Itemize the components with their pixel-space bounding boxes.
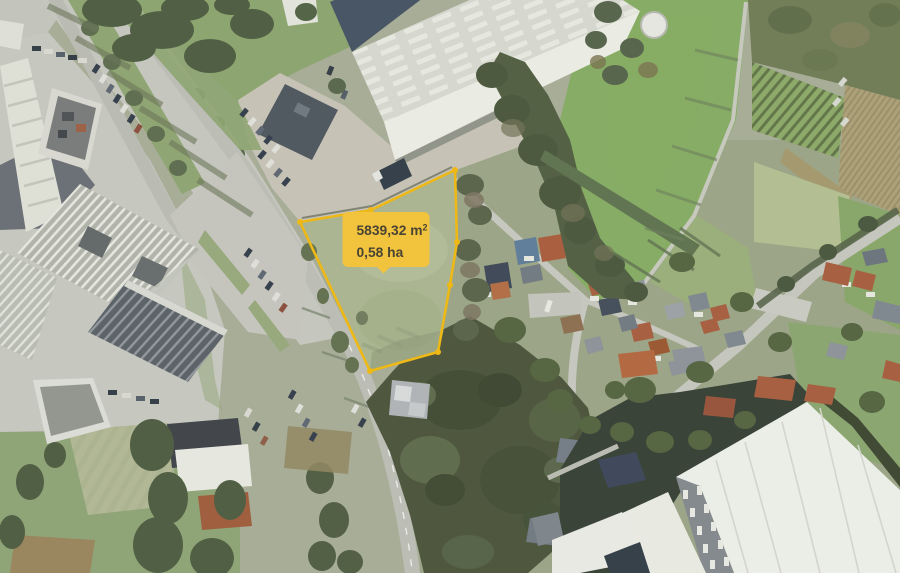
svg-text:0,58 ha: 0,58 ha [357, 245, 404, 260]
svg-text:5839,32 m2: 5839,32 m2 [357, 223, 428, 239]
